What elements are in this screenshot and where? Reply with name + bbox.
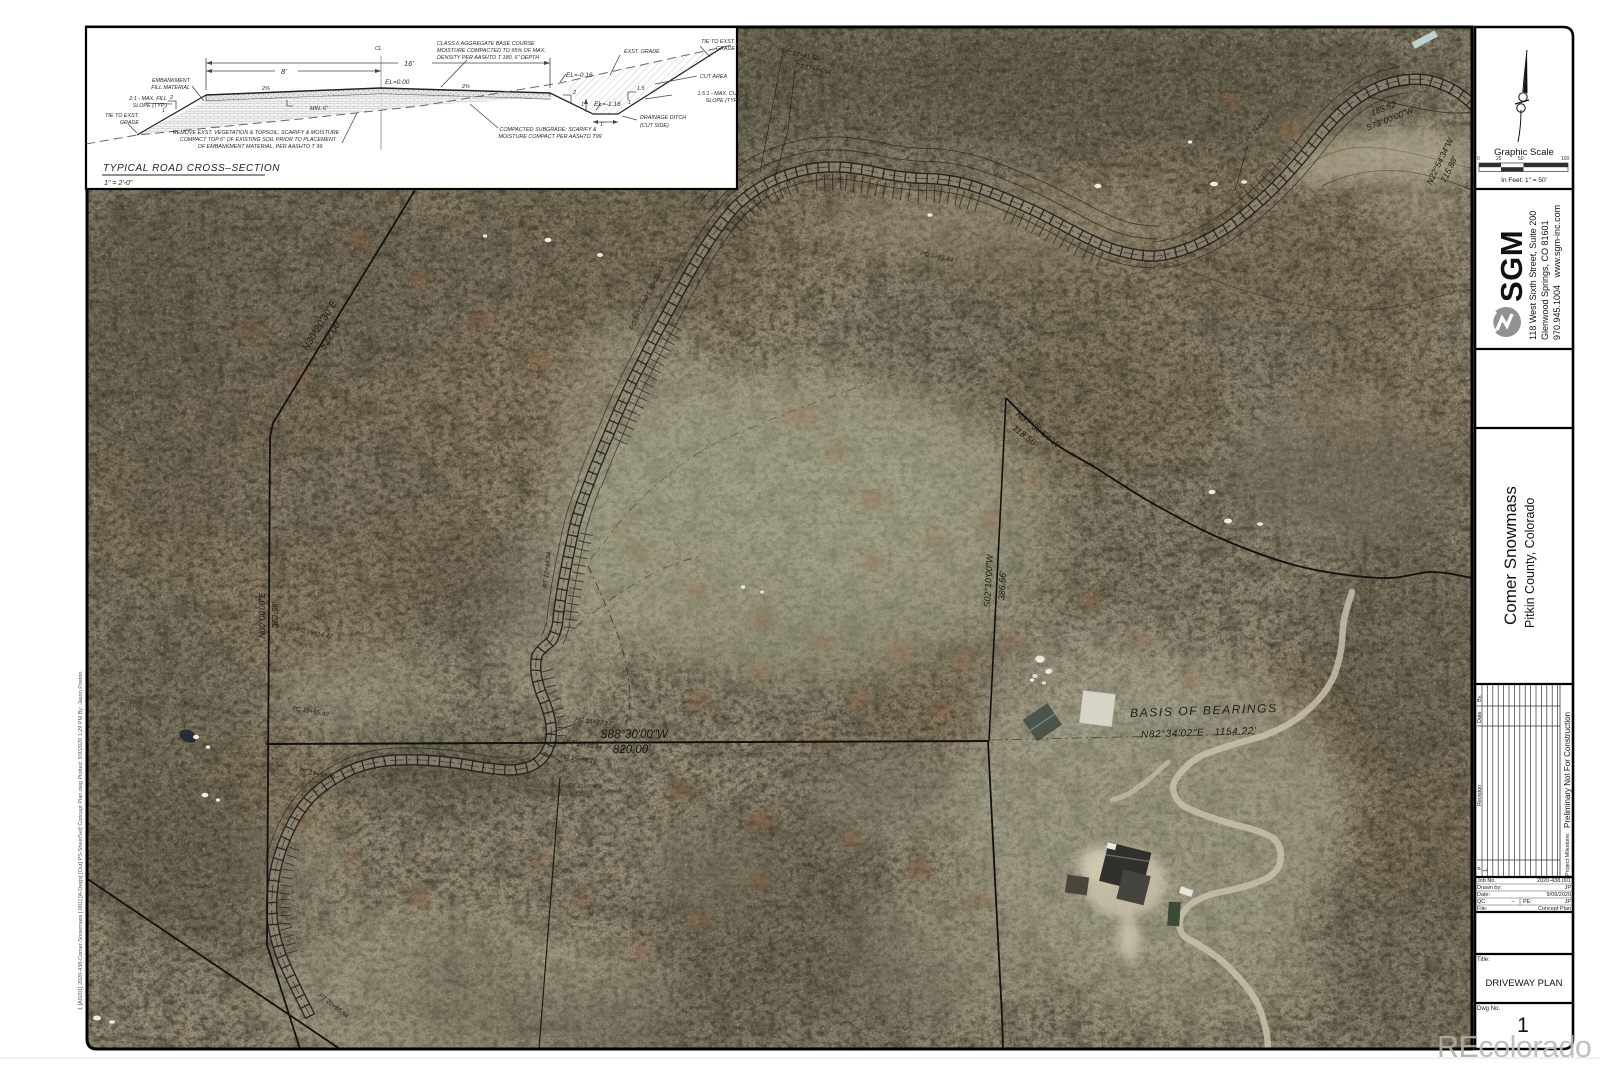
svg-text:Rob RB. Post 92: Rob RB. Post 92 — [120, 704, 165, 710]
svg-text:S88°30'00"W: S88°30'00"W — [600, 729, 669, 741]
svg-text:1.5:1 - MAX. CUT: 1.5:1 - MAX. CUT — [697, 91, 740, 97]
svg-text:Job No.: Job No. — [1477, 878, 1496, 884]
svg-text:Glenwood Springs, CO 81601: Glenwood Springs, CO 81601 — [1540, 220, 1550, 340]
svg-text:By.: By. — [1477, 694, 1483, 702]
svg-text:1 [A0201] 2020-438-Comer-Snowm: 1 [A0201] 2020-438-Comer-Snowmass [.001]… — [78, 672, 84, 1010]
svg-text:2020-438.001: 2020-438.001 — [1537, 878, 1571, 884]
svg-text:25: 25 — [1496, 156, 1502, 162]
svg-text:Revision: Revision — [1477, 785, 1483, 806]
svg-text:MOISTURE COMPACT PER AASHTO T9: MOISTURE COMPACT PER AASHTO T99 — [498, 134, 601, 140]
svg-text:Graphic Scale: Graphic Scale — [1494, 147, 1554, 158]
svg-text:Project Milestone:: Project Milestone: — [1565, 832, 1571, 876]
svg-text:1: 1 — [628, 100, 631, 106]
svg-text:0: 0 — [1477, 156, 1480, 162]
svg-text:MIN. 6": MIN. 6" — [310, 106, 329, 112]
svg-text:TIE TO EXST.: TIE TO EXST. — [105, 113, 139, 119]
svg-text:118 West Sixth Street, Suite 2: 118 West Sixth Street, Suite 200 — [1528, 211, 1538, 340]
svg-text:File:: File: — [1477, 906, 1488, 912]
svg-text:COMPACT TOP 6" OF EXISTING SOI: COMPACT TOP 6" OF EXISTING SOIL PRIOR TO… — [180, 137, 337, 143]
svg-text:2%: 2% — [461, 84, 470, 90]
svg-text:970.945.1004 www.sgm-inc.com: 970.945.1004 www.sgm-inc.com — [1552, 205, 1562, 340]
svg-text:DRIVEWAY PLAN: DRIVEWAY PLAN — [1486, 978, 1563, 989]
svg-text:SGM: SGM — [1494, 230, 1529, 302]
svg-text:FILL MATERIAL: FILL MATERIAL — [151, 85, 190, 91]
svg-text:EL=-0.16: EL=-0.16 — [566, 72, 593, 79]
svg-text:EL=-1.16: EL=-1.16 — [594, 101, 621, 108]
svg-text:Date:: Date: — [1477, 892, 1491, 898]
svg-text:Preliminary Not For Constructi: Preliminary Not For Construction — [1563, 712, 1572, 828]
svg-text:GRADE: GRADE — [716, 46, 736, 52]
svg-text:CUT AREA: CUT AREA — [700, 74, 727, 80]
svg-text:2:1 - MAX. FILL: 2:1 - MAX. FILL — [128, 96, 167, 102]
svg-text:Date: Date — [1477, 711, 1483, 723]
svg-text:1" = 2'-0": 1" = 2'-0" — [104, 180, 133, 187]
svg-text:1.5: 1.5 — [637, 86, 645, 92]
svg-text:Comer Snowmass: Comer Snowmass — [1501, 486, 1520, 625]
svg-text:N00°00'00"E: N00°00'00"E — [258, 592, 267, 638]
svg-text:Drawn by:: Drawn by: — [1477, 885, 1502, 891]
svg-text:SLOPE (TYP.): SLOPE (TYP.) — [133, 103, 168, 109]
svg-text:GRADE: GRADE — [120, 120, 140, 126]
svg-text:JP: JP — [1565, 885, 1572, 891]
svg-text:EMBANKMENT: EMBANKMENT — [152, 78, 191, 84]
svg-text:REcolorado: REcolorado — [1437, 1030, 1591, 1064]
svg-text:CL: CL — [375, 46, 382, 52]
svg-text:Rec. No. #12067: Rec. No. #12067 — [544, 791, 593, 798]
svg-text:2%: 2% — [261, 86, 270, 92]
svg-text:EXST. GRADE: EXST. GRADE — [624, 49, 660, 55]
svg-text:QC:: QC: — [1477, 899, 1487, 905]
svg-text:PE:: PE: — [1523, 899, 1532, 905]
svg-text:455 White Fullmesh: 455 White Fullmesh — [116, 696, 170, 702]
svg-text:2: 2 — [169, 95, 173, 101]
svg-text:16': 16' — [404, 59, 414, 68]
svg-text:362.59': 362.59' — [271, 602, 280, 628]
svg-text:2: 2 — [572, 90, 576, 96]
svg-text:--: -- — [1511, 899, 1515, 905]
svg-text:JP: JP — [1565, 899, 1572, 905]
svg-text:1: 1 — [1483, 869, 1489, 872]
svg-text:1: 1 — [581, 102, 584, 108]
svg-text:EL=0.00: EL=0.00 — [385, 79, 410, 86]
svg-text:20.0' Access Easement: 20.0' Access Easement — [533, 783, 603, 790]
svg-text:MOISTURE COMPACTED TO 95% OF M: MOISTURE COMPACTED TO 95% OF MAX. — [437, 48, 546, 54]
svg-text:100: 100 — [1561, 156, 1570, 162]
svg-text:REMOVE EXST. VEGETATION & TOPS: REMOVE EXST. VEGETATION & TOPSOIL, SCARI… — [173, 130, 340, 136]
svg-text:Pitkin County, Colorado: Pitkin County, Colorado — [1523, 498, 1537, 628]
svg-text:TYPICAL ROAD CROSS–SECTION: TYPICAL ROAD CROSS–SECTION — [103, 163, 280, 174]
svg-text:386.56': 386.56' — [996, 571, 1008, 601]
svg-text:DENSITY PER AASHTO T 180, 6" D: DENSITY PER AASHTO T 180, 6" DEPTH — [437, 55, 539, 61]
svg-text:COMPACTED SUBGRADE: SCARIFY &: COMPACTED SUBGRADE: SCARIFY & — [499, 127, 597, 133]
svg-text:Dwg No.: Dwg No. — [1477, 1006, 1500, 1012]
svg-text:Concept Plan: Concept Plan — [1538, 906, 1571, 912]
svg-text:(CUT SIDE): (CUT SIDE) — [640, 123, 669, 129]
svg-text:TIE TO EXST.: TIE TO EXST. — [701, 39, 735, 45]
svg-text:50: 50 — [1518, 156, 1524, 162]
svg-text:8': 8' — [281, 67, 287, 76]
svg-text:SLOPE (TYP.): SLOPE (TYP.) — [706, 98, 741, 104]
svg-text:CLASS 6 AGGREGATE BASE COURSE: CLASS 6 AGGREGATE BASE COURSE — [437, 41, 535, 47]
svg-text:In Feet: 1" = 50': In Feet: 1" = 50' — [1501, 177, 1547, 184]
svg-text:9/09/2020: 9/09/2020 — [1547, 892, 1571, 898]
svg-text:Title:: Title: — [1477, 957, 1490, 963]
svg-text:820.00': 820.00' — [613, 744, 651, 756]
svg-text:OF EMBANKMENT MATERIAL, PER AA: OF EMBANKMENT MATERIAL, PER AASHTO T 99 — [198, 144, 323, 150]
svg-text:DRAINAGE DITCH: DRAINAGE DITCH — [640, 115, 686, 121]
